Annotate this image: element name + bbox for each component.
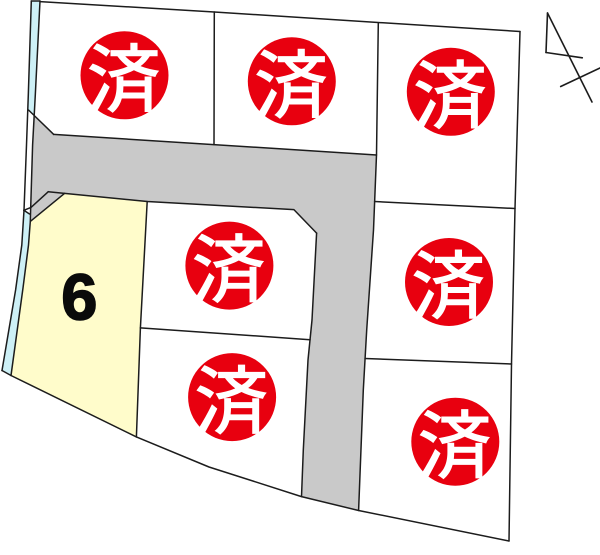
svg-text:6: 6	[61, 261, 97, 334]
